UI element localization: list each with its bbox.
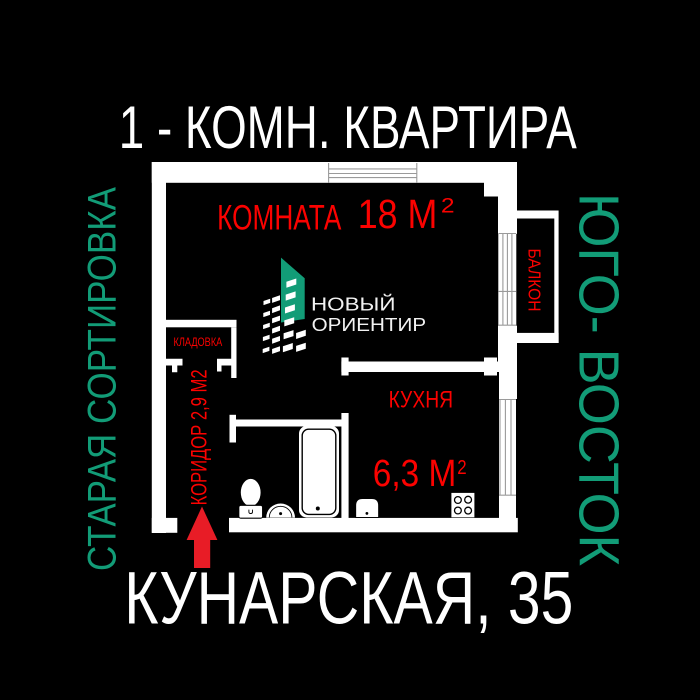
svg-text:2: 2 xyxy=(441,194,455,217)
svg-text:2: 2 xyxy=(457,456,466,479)
svg-text:КЛАДОВКА: КЛАДОВКА xyxy=(174,335,223,349)
svg-text:18 М: 18 М xyxy=(358,191,438,237)
svg-text:6,3 М: 6,3 М xyxy=(373,452,457,495)
svg-text:ОРИЕНТИР: ОРИЕНТИР xyxy=(312,314,427,335)
svg-text:КОМНАТА: КОМНАТА xyxy=(217,198,342,237)
svg-text:НОВЫЙ: НОВЫЙ xyxy=(311,294,396,315)
svg-text:ЮГО- ВОСТОК: ЮГО- ВОСТОК xyxy=(568,193,631,566)
svg-text:КУХНЯ: КУХНЯ xyxy=(389,387,454,414)
svg-text:СТАРАЯ СОРТИРОВКА: СТАРАЯ СОРТИРОВКА xyxy=(81,187,125,571)
svg-text:1 - КОМН. КВАРТИРА: 1 - КОМН. КВАРТИРА xyxy=(119,94,577,161)
svg-text:КОРИДОР 2,9 М2: КОРИДОР 2,9 М2 xyxy=(187,369,212,505)
svg-text:КУНАРСКАЯ, 35: КУНАРСКАЯ, 35 xyxy=(124,557,573,640)
svg-text:БАЛКОН: БАЛКОН xyxy=(525,249,545,312)
